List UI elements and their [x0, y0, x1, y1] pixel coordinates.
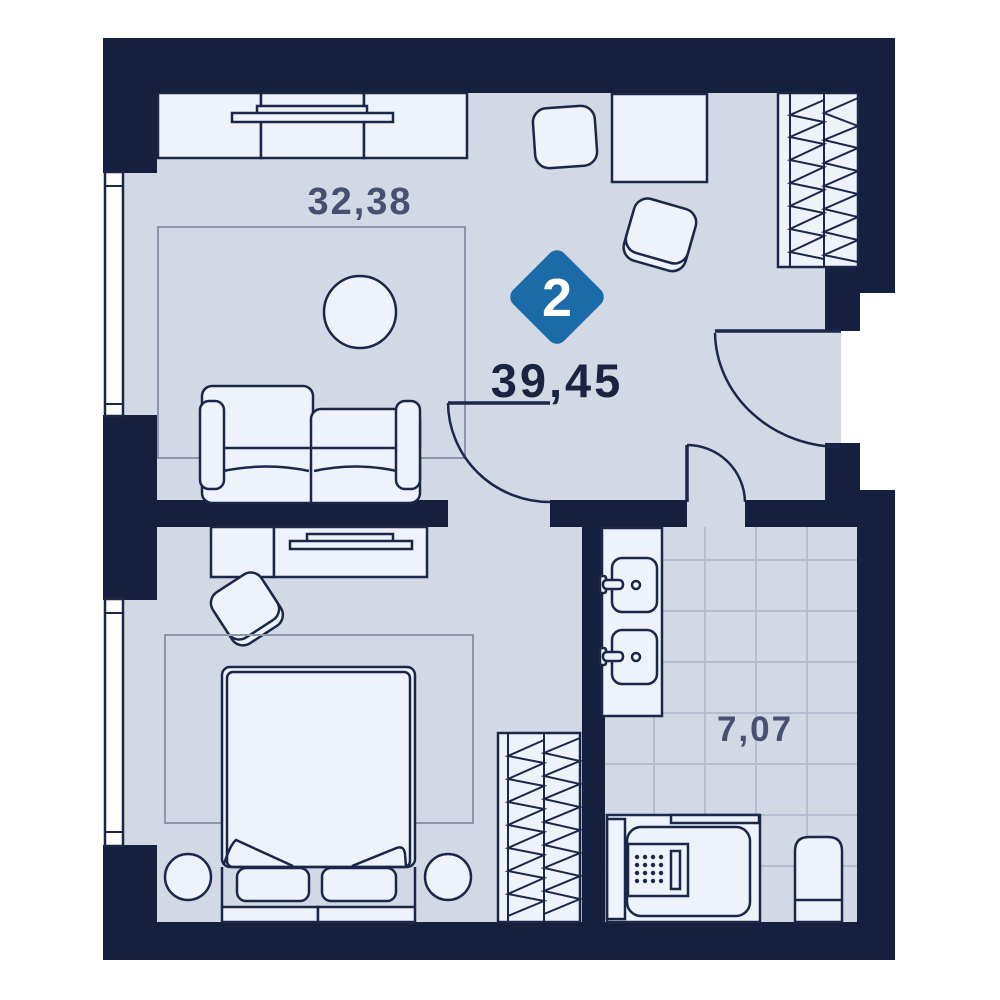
kitchen-stool-1: [532, 105, 598, 169]
floor-plan: 32,38 2 39,45 7,07: [0, 0, 1000, 1000]
wall-top: [103, 38, 895, 93]
bedroom-window: [105, 599, 123, 846]
washing-machine: [607, 815, 760, 922]
living-room-area-label: 32,38: [307, 181, 412, 223]
toilet: [795, 837, 842, 922]
wall-interior-right: [745, 500, 860, 527]
pillow-left: [237, 868, 309, 901]
pillow-right: [322, 868, 396, 901]
wall-entry-step-upper: [825, 267, 860, 331]
desk-shelf-lower: [290, 541, 412, 549]
wall-right-lower: [857, 490, 895, 960]
headboard-right: [318, 907, 415, 922]
rooms-badge-number: 2: [542, 268, 572, 328]
headboard-left: [222, 907, 318, 922]
bedroom-wardrobe: [498, 733, 580, 922]
total-area-label: 39,45: [491, 354, 624, 407]
wall-left-upper: [103, 38, 157, 173]
bathroom-vanity: [600, 528, 662, 716]
nightstand-right: [425, 854, 471, 900]
kitchen-counter: [158, 93, 467, 158]
wall-entry-step-lower: [825, 443, 860, 503]
kitchen-shelf-lower: [232, 113, 393, 122]
floor-plan-canvas: 32,38 2 39,45 7,07: [0, 0, 1000, 1000]
hall-wardrobe: [778, 93, 858, 267]
bathroom-area-label: 7,07: [717, 710, 793, 749]
nightstand-left: [165, 854, 211, 900]
wall-left-middle: [103, 415, 157, 600]
wall-interior-middle: [550, 500, 687, 527]
sofa-armrest-right: [396, 401, 420, 489]
bedroom-window-recess-floor: [122, 600, 157, 845]
living-room-window: [105, 172, 123, 416]
entrance-outside: [841, 331, 901, 443]
wall-right-upper: [857, 38, 895, 293]
kitchen-table: [612, 94, 707, 182]
wall-bottom: [103, 922, 895, 960]
coffee-table: [324, 276, 396, 348]
mattress: [222, 667, 415, 867]
bedroom-desk: [211, 527, 427, 577]
sofa-armrest-left: [200, 401, 224, 489]
